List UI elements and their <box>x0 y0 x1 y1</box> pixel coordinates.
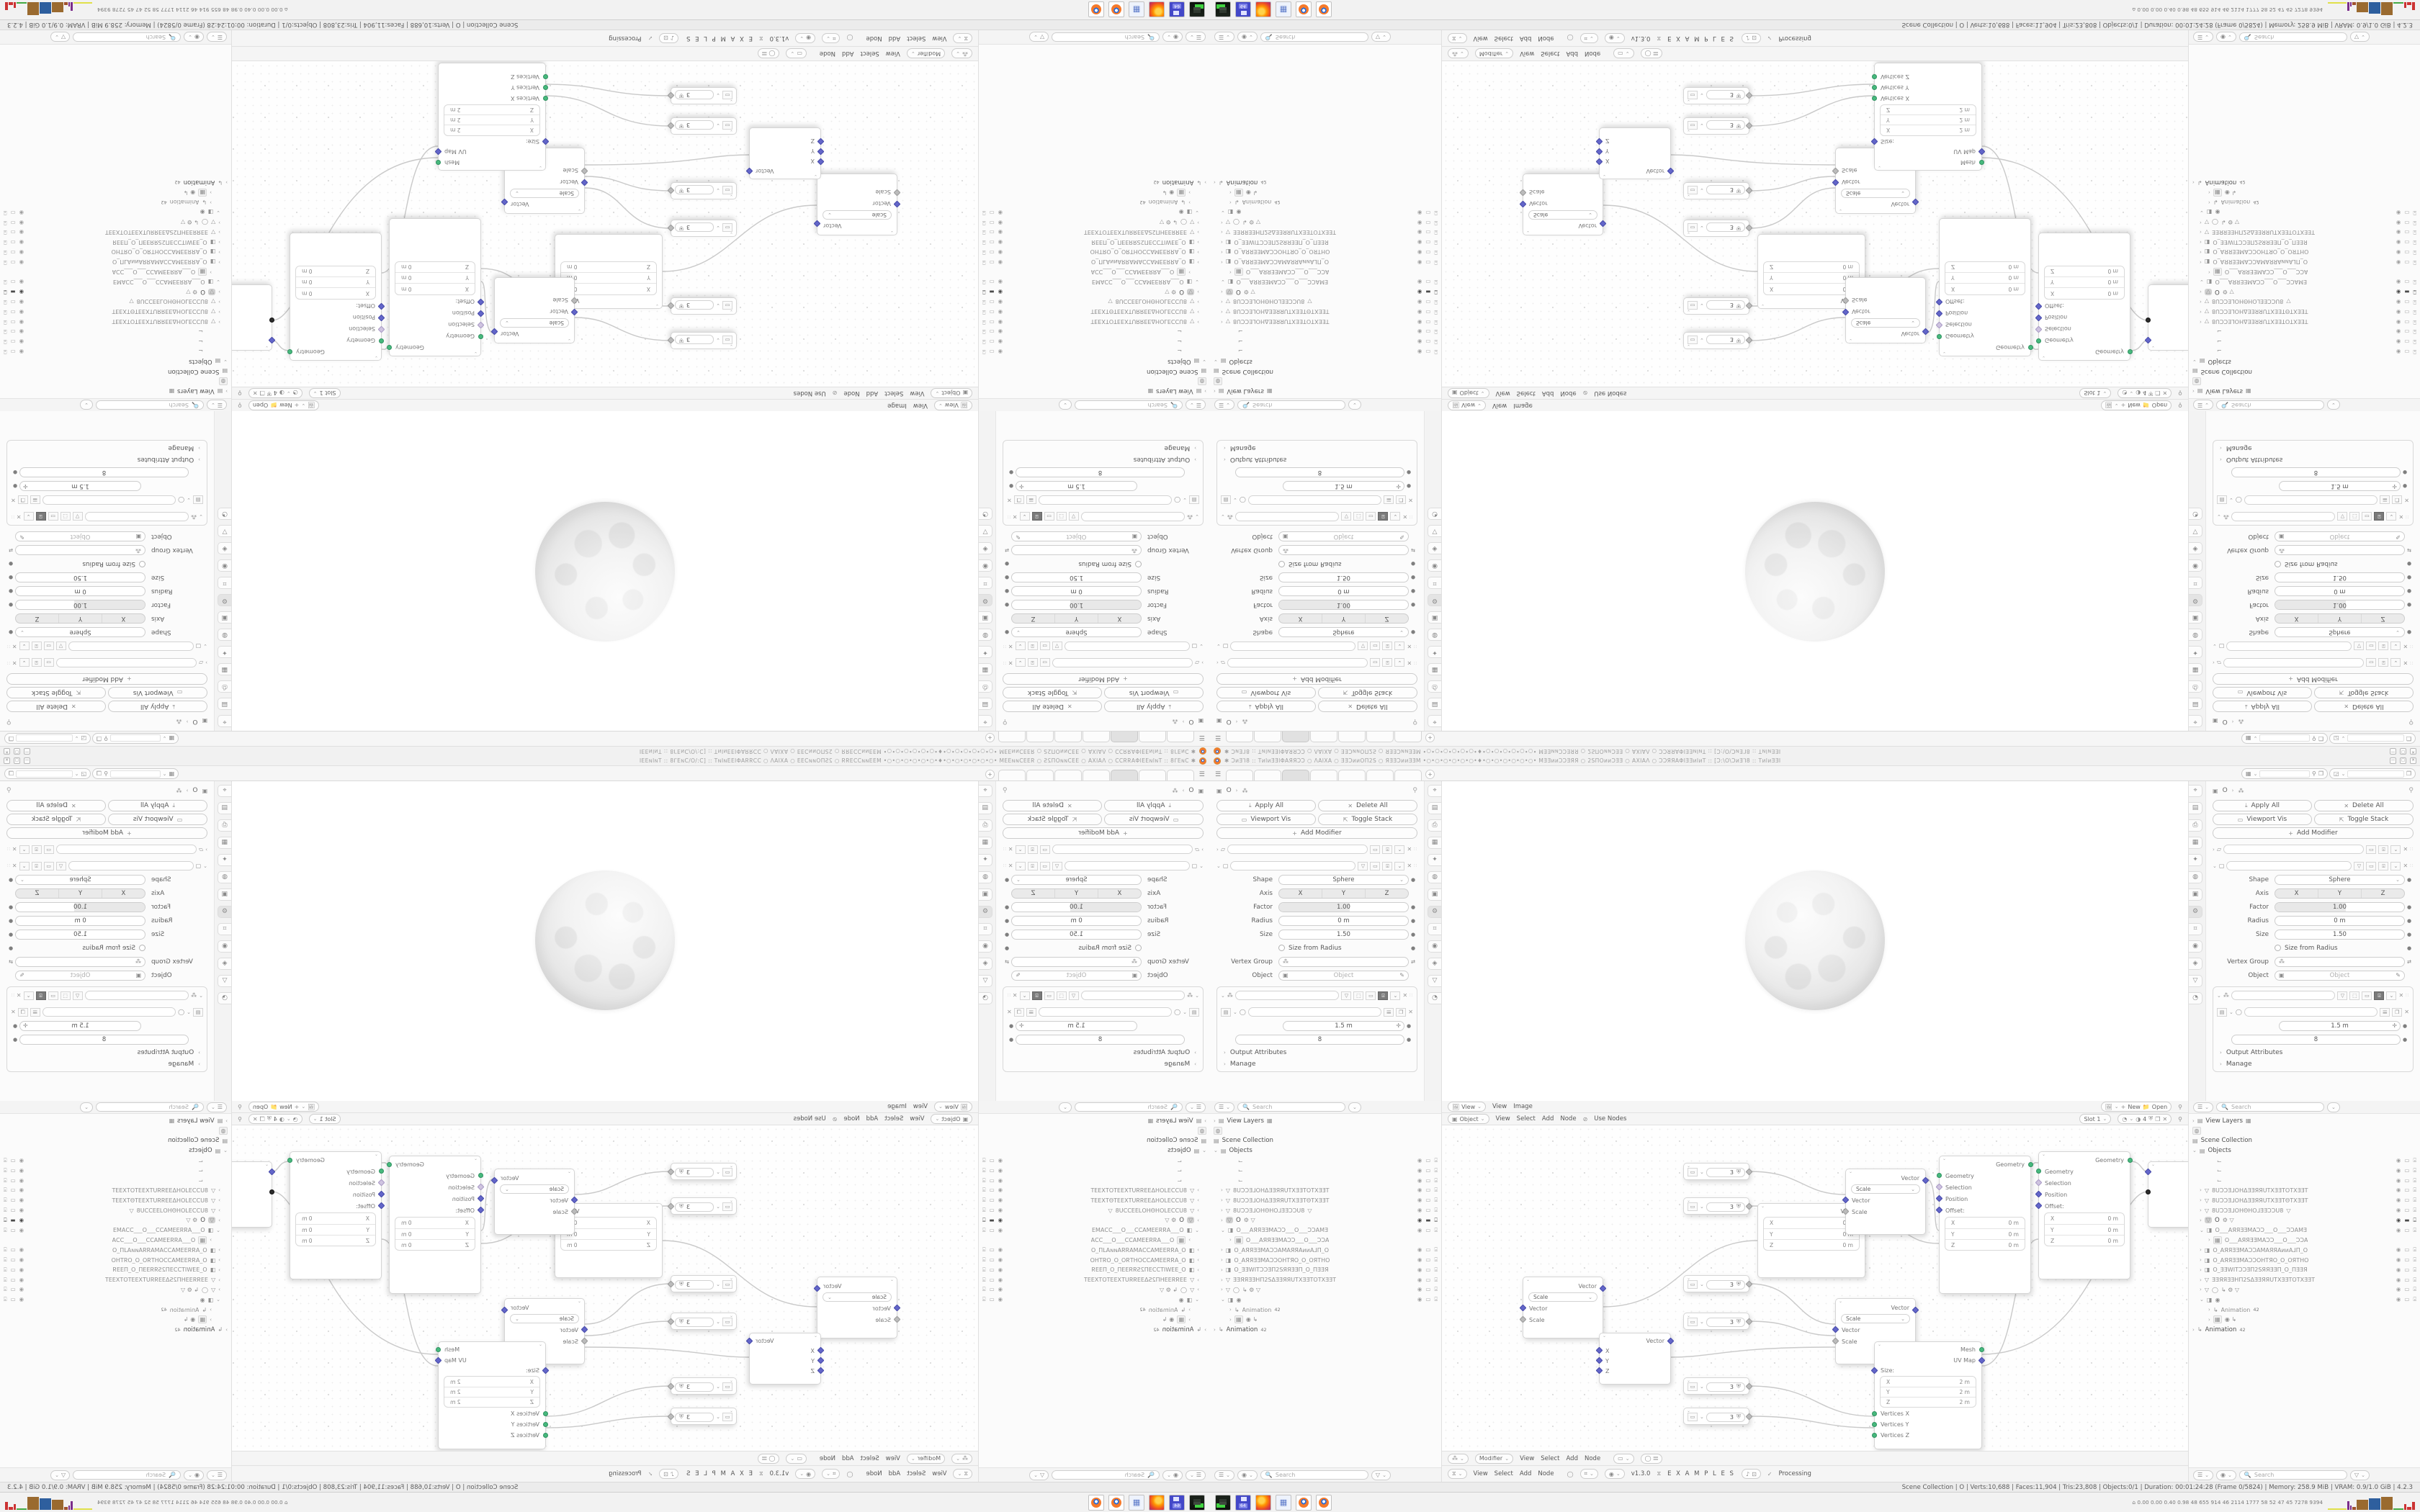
camera-icon[interactable]: ⌻ <box>982 308 986 315</box>
size-field[interactable]: 1.50 <box>2275 573 2405 583</box>
drag-handle[interactable]: ∷ <box>2410 660 2414 665</box>
camera-icon[interactable]: ⌹ <box>1435 288 1438 295</box>
toggle-stack-button[interactable]: ⇱Toggle Stack <box>1003 814 1102 825</box>
menu-add[interactable]: Add <box>889 1470 900 1477</box>
outliner-row[interactable]: ›◨O_AЯЯƎƎMAƆƆOHTЯO_O_OЯTHO◉▭⌻ <box>4 247 228 257</box>
remove-modifier-icon[interactable]: ✕ <box>1402 992 1407 999</box>
set-position-node[interactable]: ⌄ Geometry Geometry Selection Position O… <box>389 218 481 356</box>
outliner-row[interactable]: ⌄◨O___AЯЯƎƎMAƆƆ___O___ƆƆAMƎ◉▭⌻ <box>1214 1225 1438 1236</box>
node-canvas[interactable]: ⌄▭⌄3⛨ ⌄▭⌄3⛨ ⌄▭⌄3⛨ ⌄▭⌄3⛨ ⌄▭⌄3⛨ ⌄▭⌄3⛨ ⌄ Ve… <box>1442 61 2188 387</box>
attribute-input-socket[interactable] <box>269 318 274 323</box>
pin-icon[interactable]: ⚲ <box>2408 787 2414 794</box>
menu-add[interactable]: Add <box>1542 1115 1554 1122</box>
fake-user-icon[interactable]: 𝄙 <box>1384 496 1394 505</box>
camera-icon[interactable]: ⌹ <box>4 1217 7 1224</box>
camera-icon[interactable]: ⌻ <box>982 278 986 285</box>
outliner-row[interactable]: ›▽ƎƎЯЯƎƎHΠ2SΔƎƎЯЯUTXƎƎTOTXƎƎT◉▭⌻ <box>2192 227 2416 237</box>
scene-selector[interactable]: ▦⌄ ⚲ ❐ <box>2241 768 2328 779</box>
size-from-radius-radio[interactable] <box>1278 561 1285 567</box>
view-layer-field[interactable] <box>2347 735 2403 742</box>
modifier-name-field[interactable] <box>2223 658 2365 667</box>
tab-scene-icon[interactable]: ✦ <box>979 646 992 658</box>
viewport-3d[interactable] <box>1442 411 2188 731</box>
toggle-stack-button[interactable]: ⇱Toggle Stack <box>6 687 106 698</box>
monitor-icon[interactable]: ▭ <box>990 318 995 325</box>
pin-icon[interactable]: ⚲ <box>6 718 12 725</box>
set-position-node[interactable]: ⌄ Geometry Geometry Selection Position O… <box>290 233 382 361</box>
unlink-icon[interactable]: ✕ <box>1007 497 1012 503</box>
tab-data-icon[interactable]: ▽ <box>218 975 231 987</box>
extras-dropdown-icon[interactable]: ⌄ <box>1394 845 1404 854</box>
outliner-row[interactable]: ›▦◉ ↳ <box>982 187 1206 197</box>
processing-checkbox[interactable]: Processing <box>609 35 641 42</box>
tab-material-icon[interactable]: ◔ <box>979 992 992 1004</box>
outliner-row[interactable]: ▤Scene Collection <box>1214 366 1438 377</box>
processing-checkbox[interactable]: Processing <box>609 1470 641 1477</box>
pin-icon[interactable]: ⚲ <box>104 735 108 742</box>
monitor-icon[interactable]: ▭ <box>2404 278 2409 285</box>
menu-node[interactable]: Node <box>1560 1115 1576 1122</box>
value-node[interactable]: ⌄▭⌄3⛨ <box>1683 182 1749 199</box>
outliner-row[interactable]: ›▽8UƆƆƎ⅃OHΔƎƎЯЯUTXƎƎTOTXƎƎT◉▭⌻ <box>982 317 1206 327</box>
snapping-dropdown[interactable]: ⌗⌄ <box>1580 33 1598 43</box>
display-mode-dropdown[interactable]: ☰⌄ <box>1186 1470 1206 1480</box>
value-field[interactable]: 3⛨ <box>1706 301 1745 310</box>
shape-select[interactable]: Sphere <box>2275 875 2405 885</box>
minimize-button[interactable]: — <box>2390 748 2396 755</box>
monitor-icon[interactable]: ▭ <box>2404 1197 2409 1204</box>
search-input[interactable]: 🔍Search <box>1237 1102 1345 1112</box>
eye-icon[interactable]: ◉ <box>2396 209 2401 216</box>
outliner-row[interactable]: ›▽8UƆƆƎ⅃OHΔƎƎЯЯUTXƎƎTOTXƎƎT◉▭⌻ <box>1214 1186 1438 1196</box>
eye-icon[interactable]: ◉ <box>19 228 24 235</box>
tab-modifiers-icon[interactable]: ⚙ <box>218 906 231 918</box>
monitor-icon[interactable]: ▭ <box>11 219 16 226</box>
count-field[interactable]: 8 <box>1235 468 1404 478</box>
node-tree-icon[interactable]: ▤ <box>193 1008 203 1017</box>
minimize-button[interactable]: — <box>2390 757 2396 764</box>
tab-physics-icon[interactable]: ◉ <box>1428 940 1441 953</box>
tab-world-icon[interactable]: ◍ <box>979 871 992 883</box>
value-field[interactable]: 3⛨ <box>1706 1168 1745 1177</box>
value-field[interactable]: 3⛨ <box>675 336 714 345</box>
monitor-icon[interactable]: ▭ <box>1425 228 1430 235</box>
object-field[interactable]: ▣Object✎ <box>1011 971 1142 981</box>
camera-icon[interactable]: ⌻ <box>2414 1246 2417 1254</box>
manage-disclosure[interactable]: ›Manage <box>2220 1058 2409 1069</box>
copy-icon[interactable]: ❐ <box>260 390 265 397</box>
eyedropper-icon[interactable]: ✎ <box>2396 534 2401 540</box>
vertices-z-input-socket[interactable] <box>543 74 548 79</box>
outliner-row[interactable]: ⌙◉▭⌻ <box>982 346 1206 356</box>
monitor-toggle-icon[interactable]: ▭ <box>2366 862 2376 870</box>
search-input[interactable]: 🔍Search <box>96 400 204 410</box>
edit-toggle-icon[interactable]: ⬚ <box>2349 991 2359 1000</box>
camera-icon[interactable]: ⌻ <box>1435 308 1438 315</box>
workspace-tab[interactable] <box>1054 732 1082 742</box>
viewport-3d[interactable] <box>232 411 978 731</box>
count-field[interactable]: 8 <box>1016 468 1185 478</box>
camera-toggle-icon[interactable]: ⌻ <box>36 991 46 1000</box>
grid-node[interactable]: ⌄ Mesh UV Map Size: X2 m Y2 m Z2 m Verti… <box>438 1341 546 1449</box>
workspace-tab[interactable] <box>1026 770 1054 780</box>
geometry-input-socket[interactable] <box>478 334 483 339</box>
collapse-dropdown[interactable]: ⌄ <box>80 400 93 410</box>
axis-z-button[interactable]: Z <box>2362 615 2404 624</box>
camera-toggle-icon[interactable]: ⌻ <box>1028 862 1038 870</box>
monitor-icon[interactable]: ▭ <box>990 1277 995 1284</box>
modifier-name-field[interactable] <box>1081 991 1186 1000</box>
camera-icon[interactable]: ⌻ <box>982 1256 986 1264</box>
monitor-toggle-icon[interactable]: ▭ <box>2366 659 2376 667</box>
filter-toggle-icon[interactable]: ▽ <box>2354 862 2364 870</box>
tab-viewlayer-icon[interactable]: ▦ <box>2189 663 2202 675</box>
camera-icon[interactable]: ⌻ <box>1435 1167 1438 1174</box>
extras-dropdown-icon[interactable]: ⌄ <box>1390 513 1400 521</box>
eye-icon[interactable]: ◉ <box>998 228 1003 235</box>
eye-icon[interactable]: ◉ <box>998 1177 1003 1184</box>
proportional-dropdown[interactable]: ◉⌄ <box>1605 1469 1625 1479</box>
modifier-row-geonodes[interactable]: ⌄⁂ ▽⬚▭⌻⌄ ✕∷ <box>1221 989 1413 1002</box>
circle-icon[interactable]: ◯ <box>1567 35 1574 42</box>
axis-y-button[interactable]: Y <box>1322 889 1366 898</box>
axis-segmented-control[interactable]: X Y Z <box>15 614 145 624</box>
menu-node[interactable]: Node <box>1585 50 1600 58</box>
tab-physics-icon[interactable]: ◉ <box>979 559 992 572</box>
check-icon[interactable]: ⊘ <box>1583 1116 1588 1122</box>
value-node[interactable]: ⌄▭⌄3⛨ <box>1683 1377 1749 1395</box>
outliner-row[interactable]: ›◨O_AЯЯƎƎMAƆƆOHTЯO_O_OЯTHO◉▭⌻ <box>1214 1255 1438 1265</box>
value-node[interactable]: ⌄▭⌄3⛨ <box>1683 220 1749 237</box>
outliner-row[interactable]: ›▽ƎƎЯЯƎƎHΠ2SΔƎƎЯЯUTXƎƎTOTXƎƎT◉▭⌻ <box>982 227 1206 237</box>
modifier-row-expanded[interactable]: ⌄▢ ▽▭⌻⌄ ✕∷ <box>2213 640 2414 652</box>
camera-icon[interactable]: ⌻ <box>4 1197 7 1204</box>
camera-icon[interactable]: ⌻ <box>982 238 986 246</box>
monitor-icon[interactable]: ▭ <box>1425 1157 1430 1164</box>
toggle-stack-button[interactable]: ⇱Toggle Stack <box>2314 687 2414 698</box>
monitor-toggle-icon[interactable]: ▭ <box>1040 659 1050 667</box>
outliner-row[interactable]: ›↳Animation42 <box>2192 1305 2416 1315</box>
tab-modifiers-icon[interactable]: ⚙ <box>218 594 231 606</box>
value-field[interactable]: 3⛨ <box>675 1280 714 1290</box>
outliner-row[interactable]: ›▽◯↳ ⚙ ▽◉▭⌻ <box>4 1285 228 1295</box>
tab-tool-icon[interactable]: ⌖ <box>979 785 992 797</box>
outliner-row[interactable]: ›▽8UƆƆƎ⅃OHΔƎƎЯЯUTXƎƎTΘTXƎƎT◉▭⌻ <box>2192 1195 2416 1205</box>
camera-icon[interactable]: ⌻ <box>982 1266 986 1274</box>
camera-icon[interactable]: ⌻ <box>2414 1207 2417 1214</box>
monitor-icon[interactable]: ▭ <box>11 308 16 315</box>
node-group-row[interactable]: ▤⌄ ◯ 𝄙❐✕ <box>1221 494 1413 506</box>
vector-math-node[interactable]: ⌄ Vector Scale⌄ Vector Scale <box>1523 1277 1603 1338</box>
outliner-row-selected[interactable]: ›▽O⚙ ▽◉▬⌹ <box>2192 1215 2416 1225</box>
modifier-row-collapsed[interactable]: ›▱ ▭⌻⌄ ✕∷ <box>2213 843 2414 855</box>
check-icon[interactable]: ✓ <box>1767 1471 1773 1477</box>
display-mode-dropdown[interactable]: ☰⌄ <box>1186 1102 1206 1112</box>
factor-slider[interactable]: 1.00 <box>2275 600 2405 611</box>
modifier-name-field[interactable] <box>1230 642 1355 651</box>
monitor-icon[interactable]: ▭ <box>11 1177 16 1184</box>
taskbar-floppy64-icon[interactable] <box>1169 2 1185 18</box>
monitor-icon[interactable]: ▭ <box>1425 1177 1430 1184</box>
monitor-icon[interactable]: ▭ <box>990 1187 995 1194</box>
offset-table[interactable]: X0 m Y0 m Z0 m <box>295 266 376 300</box>
eyedropper-icon[interactable]: ✎ <box>19 534 24 540</box>
axis-y-button[interactable]: Y <box>58 889 102 898</box>
edit-toggle-icon[interactable]: ⬚ <box>1353 513 1363 521</box>
eye-icon[interactable]: ◉ <box>998 278 1003 285</box>
add-workspace-button[interactable]: + <box>1425 770 1435 779</box>
toggle-stack-button[interactable]: ⇱Toggle Stack <box>1003 687 1102 698</box>
camera-icon[interactable]: ⌻ <box>1435 209 1438 216</box>
shape-select[interactable]: Sphere <box>2275 628 2405 638</box>
value-node[interactable]: ⌄▭⌄3⛨ <box>1683 332 1749 349</box>
value-field[interactable]: 3⛨ <box>1706 1318 1745 1327</box>
camera-icon[interactable]: ⌻ <box>1435 328 1438 335</box>
outliner-row[interactable]: ▤Scene Collection <box>4 1136 228 1146</box>
outliner-row[interactable]: ›▽8UƆƆƎ⅃OHΔƎƎЯЯUTXƎƎTΘTXƎƎT◉▭⌻ <box>4 1195 228 1205</box>
menu-add[interactable]: Add <box>1567 50 1578 58</box>
edit-toggle-icon[interactable]: ⬚ <box>1353 991 1363 1000</box>
value-node[interactable]: ⌄▭⌄3⛨ <box>671 87 737 104</box>
processing-checkbox[interactable]: Processing <box>1778 35 1811 42</box>
node-canvas[interactable]: ⌄▭⌄3⛨ ⌄▭⌄3⛨ ⌄▭⌄3⛨ ⌄▭⌄3⛨ ⌄▭⌄3⛨ ⌄▭⌄3⛨ ⌄ Ve… <box>232 61 978 387</box>
monitor-icon[interactable]: ▭ <box>990 278 995 285</box>
value-node[interactable]: ⌄▭⌄3⛨ <box>671 332 737 349</box>
camera-icon[interactable]: ⌻ <box>4 209 7 216</box>
monitor-icon[interactable]: ▭ <box>11 338 16 345</box>
display-mode-dropdown[interactable]: ☰⌄ <box>207 400 227 410</box>
object-field[interactable]: ▣Object✎ <box>2275 532 2405 542</box>
drag-handle[interactable]: ∷ <box>6 660 10 665</box>
editor-type-dropdown[interactable]: ⁂⌄ <box>951 1454 972 1464</box>
eye-icon[interactable]: ◉ <box>19 1197 24 1204</box>
eye-icon[interactable]: ◉ <box>998 328 1003 335</box>
eye-icon[interactable]: ◉ <box>2396 1266 2401 1274</box>
toggle-stack-button[interactable]: ⇱Toggle Stack <box>6 814 106 825</box>
monitor-icon[interactable]: ▭ <box>11 228 16 235</box>
outliner-row[interactable]: ▤Scene Collection <box>982 1136 1206 1146</box>
monitor-icon[interactable]: ▭ <box>1425 338 1430 345</box>
count-field[interactable]: 8 <box>19 468 189 478</box>
tab-modifiers-icon[interactable]: ⚙ <box>1428 906 1441 918</box>
scene-name-field[interactable] <box>2259 770 2310 778</box>
monitor-icon[interactable]: ▭ <box>990 1167 995 1174</box>
axis-segmented-control[interactable]: X Y Z <box>1278 888 1409 899</box>
monitor-icon[interactable]: ▭ <box>990 228 995 235</box>
monitor-toggle-icon[interactable]: ▭ <box>44 659 54 667</box>
monitor-icon[interactable]: ▭ <box>1425 248 1430 256</box>
monitor-icon[interactable]: ▭ <box>2404 238 2409 246</box>
outliner-row[interactable]: ⌄◨◉◉▭⌻ <box>982 1295 1206 1305</box>
taskbar-blender-icon[interactable] <box>1316 1495 1332 1511</box>
eye-icon[interactable]: ◉ <box>1417 1256 1422 1264</box>
workspace-tab[interactable] <box>1338 770 1366 780</box>
monitor-icon[interactable]: ▭ <box>990 1286 995 1293</box>
combine-xyz-node[interactable]: ⌄ Vector X Y Z <box>749 1333 821 1385</box>
eye-icon[interactable]: ◉ <box>2396 1167 2401 1174</box>
object-field[interactable]: ▣Object✎ <box>2275 971 2405 981</box>
eyedropper-icon[interactable]: ✎ <box>1399 972 1404 978</box>
camera-toggle-icon[interactable]: ⌻ <box>1378 991 1388 1000</box>
geometry-input-socket[interactable] <box>1937 334 1942 339</box>
camera-icon[interactable]: ⌻ <box>1435 338 1438 345</box>
tab-data-icon[interactable]: ▽ <box>218 525 231 537</box>
offset-table[interactable]: X0 m Y0 m Z0 m <box>395 1217 475 1251</box>
filter-mode-dropdown[interactable]: ◉⌄ <box>184 1470 204 1480</box>
check-icon[interactable]: ✓ <box>648 1471 653 1477</box>
outliner-row-selected[interactable]: ›▽O⚙ ▽◉▬⌹ <box>982 287 1206 297</box>
outliner-row[interactable]: ›◨O_AЯЯƎƎMAƆƆAMAЯЯAᴎᴎA⅃Π_O◉▭⌻ <box>982 257 1206 267</box>
value-field[interactable]: 3⛨ <box>1706 1202 1745 1212</box>
outliner-row[interactable]: ›▽8UƆƆƎ⅃OHΔƎƎЯЯUTXƎƎTΘTXƎƎT◉▭⌻ <box>4 307 228 317</box>
vector-math-node[interactable]: ⌄ Vector Scale⌄ Vector Scale <box>817 1277 897 1338</box>
tab-object-icon[interactable]: ▣ <box>2189 888 2202 901</box>
tab-render-icon[interactable]: ▤ <box>2189 802 2202 814</box>
outliner-row[interactable]: ›▽ƎƎЯЯƎƎHΠ2SΔƎƎЯЯUTXƎƎTOTXƎƎT◉▭⌻ <box>4 1275 228 1285</box>
camera-icon[interactable]: ⌻ <box>1435 1246 1438 1254</box>
eye-icon[interactable]: ◉ <box>1417 328 1422 335</box>
monitor-icon[interactable]: ▬ <box>990 1217 995 1224</box>
outliner-row[interactable]: ⌙◉▭⌻ <box>982 1166 1206 1176</box>
slot-dropdown[interactable]: Slot 1⌄ <box>309 1114 341 1124</box>
monitor-icon[interactable]: ▭ <box>2404 318 2409 325</box>
eye-icon[interactable]: ◉ <box>1417 209 1422 216</box>
value-field[interactable]: 3⛨ <box>675 1202 714 1212</box>
filter-mode-dropdown[interactable]: ◉⌄ <box>2216 1470 2236 1480</box>
workspace-tab-active[interactable] <box>1282 770 1309 780</box>
viewport-3d[interactable] <box>1442 781 2188 1101</box>
tab-data-icon[interactable]: ▽ <box>979 525 992 537</box>
extras-dropdown-icon[interactable]: ⌄ <box>2386 513 2396 521</box>
filter-mode-dropdown[interactable]: ◉⌄ <box>1237 32 1258 42</box>
eye-icon[interactable]: ◉ <box>998 308 1003 315</box>
set-position-node[interactable]: ⌄ Geometry Geometry Selection Position O… <box>290 1151 382 1279</box>
extras-dropdown-icon[interactable]: ⌄ <box>2390 659 2401 667</box>
outliner-row[interactable]: ›◨O_AЯЯƎƎMAƆƆOHTЯO_O_OЯTHO◉▭⌻ <box>982 247 1206 257</box>
geometry-input-socket[interactable] <box>2036 338 2041 343</box>
taskbar-floppy64-icon[interactable] <box>1169 1495 1185 1511</box>
outliner-row[interactable]: ⌙◉▭⌻ <box>2192 336 2416 346</box>
tab-physics-icon[interactable]: ◉ <box>2189 940 2202 953</box>
remove-modifier-icon[interactable]: ✕ <box>12 846 17 852</box>
viewport-3d[interactable] <box>232 781 978 1101</box>
axis-y-button[interactable]: Y <box>2318 889 2362 898</box>
camera-icon[interactable]: ⌻ <box>1435 298 1438 305</box>
menu-view[interactable]: View <box>932 35 946 42</box>
copy-icon[interactable]: ❐ <box>2392 1008 2402 1017</box>
remove-modifier-icon[interactable]: ✕ <box>1407 643 1412 649</box>
pin-icon[interactable]: ⚲ <box>2408 718 2414 725</box>
camera-icon[interactable]: ⌻ <box>982 318 986 325</box>
outliner-row[interactable]: ⌄◨O___AЯЯƎƎMAƆƆ___O___ƆƆAMƎ◉▭⌻ <box>4 1225 228 1236</box>
camera-icon[interactable]: ⌻ <box>982 1277 986 1284</box>
taskbar-blender-icon[interactable] <box>1296 1495 1312 1511</box>
outliner-row[interactable]: ›▽8UƆƆƎ⅃OHΔƎƎЯЯUTXƎƎTΘTXƎƎT◉▭⌻ <box>2192 307 2416 317</box>
geometry-output-socket[interactable] <box>2028 1162 2033 1167</box>
drag-handle[interactable]: ∷ <box>1414 863 1417 868</box>
camera-icon[interactable]: ⌻ <box>982 1286 986 1293</box>
remove-modifier-icon[interactable]: ✕ <box>2403 846 2408 852</box>
display-mode-dropdown[interactable]: ☰⌄ <box>207 1470 227 1480</box>
tab-particles-icon[interactable]: ⌗ <box>218 923 231 935</box>
outliner-row[interactable]: ⌙◉▭⌻ <box>1214 1176 1438 1186</box>
outliner-row[interactable]: ›◨O_AЯЯƎƎMAƆƆAMAЯЯAᴎᴎA⅃Π_O◉▭⌻ <box>4 1245 228 1255</box>
search-input[interactable]: 🔍Search <box>2239 32 2347 42</box>
taskbar-firefox-icon[interactable] <box>1149 2 1165 18</box>
shield-icon[interactable]: ⛨ <box>2148 1115 2153 1122</box>
remove-modifier-icon[interactable]: ✕ <box>2398 992 2403 999</box>
close-button[interactable]: ✕ <box>4 748 10 755</box>
outliner-row[interactable]: ⌄◨O___AЯЯƎƎMAƆƆ___O___ƆƆAMƎ◉▭⌻ <box>1214 276 1438 287</box>
apply-all-button[interactable]: ⤓Apply All <box>1216 701 1316 712</box>
outliner-row[interactable]: ▤Scene Collection <box>2192 366 2416 377</box>
modifier-row-expanded[interactable]: ⌄▢ ▽▭⌻⌄ ✕∷ <box>2213 860 2414 872</box>
eye-icon[interactable]: ◉ <box>1417 308 1422 315</box>
eye-icon[interactable]: ◉ <box>2396 1227 2401 1234</box>
filter-dropdown[interactable]: ▽⌄ <box>1029 1470 1049 1480</box>
eye-icon[interactable]: ◉ <box>1417 1286 1422 1293</box>
tab-render-icon[interactable]: ▤ <box>979 698 992 710</box>
tab-particles-icon[interactable]: ⌗ <box>979 923 992 935</box>
editor-type-dropdown[interactable]: 🖼View⌄ <box>934 400 972 410</box>
tab-render-icon[interactable]: ▤ <box>979 802 992 814</box>
tab-data-icon[interactable]: ▽ <box>1428 525 1441 537</box>
output-attributes-disclosure[interactable]: ›Output Attributes <box>11 454 200 465</box>
tab-scene-icon[interactable]: ✦ <box>979 854 992 866</box>
tab-scene-icon[interactable]: ✦ <box>1428 646 1441 658</box>
new-image-button[interactable]: 🖼⌄+New📁Open <box>248 1102 320 1112</box>
tab-output-icon[interactable]: ⎙ <box>1428 819 1441 832</box>
monitor-toggle-icon[interactable]: ▭ <box>2362 991 2372 1000</box>
camera-icon[interactable]: ⌻ <box>1435 238 1438 246</box>
delete-all-button[interactable]: ✕Delete All <box>6 701 106 712</box>
drag-handle[interactable]: ∷ <box>1414 660 1417 665</box>
monitor-icon[interactable]: ▭ <box>1425 1256 1430 1264</box>
node-group-row[interactable]: ▤⌄ ◯ 𝄙❐✕ <box>11 1006 203 1018</box>
monitor-icon[interactable]: ▭ <box>1425 1246 1430 1254</box>
pin-icon[interactable]: ⚲ <box>104 770 108 777</box>
eye-icon[interactable]: ◉ <box>998 318 1003 325</box>
eye-icon[interactable]: ◉ <box>2396 298 2401 305</box>
outliner-row[interactable]: ⌙◉▭⌻ <box>4 1166 228 1176</box>
processing-checkbox[interactable]: Processing <box>1778 1470 1811 1477</box>
axis-segmented-control[interactable]: X Y Z <box>1278 614 1409 624</box>
operation-select[interactable]: Scale⌄ <box>1528 1292 1597 1302</box>
outliner-row[interactable]: ›◨O_ƎƎWITƆƆƎΠ2SЯЯƎƎΠ_O_ΠƎƎЯ◉▭⌻ <box>4 237 228 247</box>
value-node[interactable]: ⌄▭⌄3⛨ <box>1683 87 1749 104</box>
camera-icon[interactable]: ⌻ <box>4 1296 7 1303</box>
output-attributes-disclosure[interactable]: ›Output Attributes <box>1224 454 1413 465</box>
eye-icon[interactable]: ◉ <box>1417 288 1422 295</box>
taskbar-floppy64-icon[interactable] <box>1235 2 1251 18</box>
monitor-icon[interactable]: ▭ <box>11 248 16 256</box>
menu-view[interactable]: View <box>910 1115 924 1122</box>
outliner-row[interactable]: ⌄▤Objects <box>982 356 1206 366</box>
monitor-toggle-icon[interactable]: ▭ <box>1370 659 1380 667</box>
scene-selector[interactable]: ▦⌄ ⚲ ❐ <box>92 768 179 779</box>
value-node[interactable]: ⌄▭⌄3⛨ <box>671 1163 737 1180</box>
node-group-row[interactable]: ▤⌄ ◯ 𝄙❐✕ <box>11 494 203 506</box>
offset-table[interactable]: X0 m Y0 m Z0 m <box>295 1212 376 1246</box>
menu-view[interactable]: View <box>1496 1115 1510 1122</box>
minimize-button[interactable]: — <box>24 748 30 755</box>
display-mode-dropdown[interactable]: ☰⌄ <box>2193 1470 2213 1480</box>
geometry-input-socket[interactable] <box>2036 1169 2041 1174</box>
monitor-icon[interactable]: ▭ <box>2404 228 2409 235</box>
tools-pill[interactable]: ♪⊡ <box>1742 1469 1761 1479</box>
editor-type-dropdown[interactable]: ⁂⌄ <box>951 49 972 59</box>
material-selector[interactable]: ◔⌄◑4⛨❐✕ <box>248 1114 302 1124</box>
